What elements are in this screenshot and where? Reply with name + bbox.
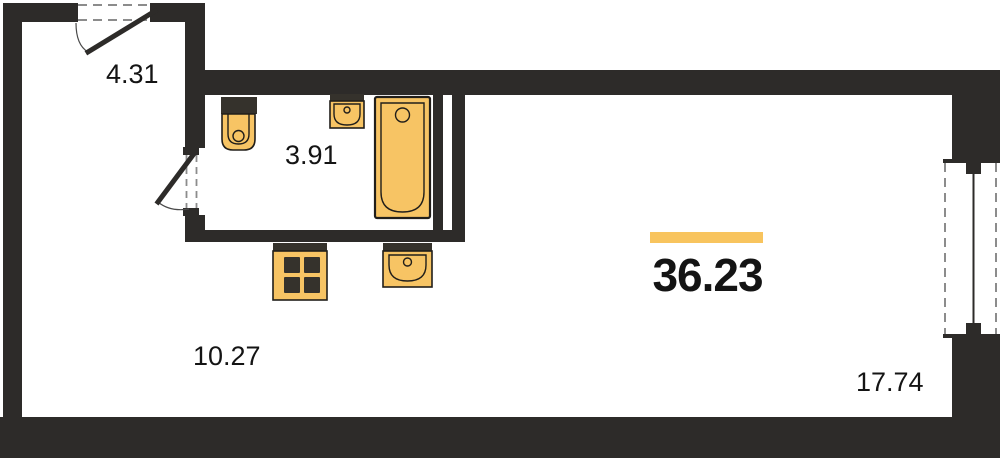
window-frame-bottom: [966, 323, 981, 334]
window-icon: [943, 159, 1000, 338]
floor-plan: 4.31 3.91 10.27 17.74 36.23: [0, 0, 1000, 458]
living-area-label: 17.74: [856, 368, 924, 398]
bathroom-door-icon: [158, 147, 199, 216]
total-area-accent-bar: [650, 232, 763, 243]
bathtub-body: [375, 97, 430, 218]
bathroom-area-label: 3.91: [285, 141, 338, 171]
stove-burner-1: [284, 257, 300, 273]
bathtub-icon: [375, 97, 430, 218]
sink-body: [330, 101, 364, 128]
entrance-door-swing-arc: [76, 23, 88, 52]
kitchen-sink-mount: [383, 243, 432, 251]
bathroom-door-leaf: [158, 155, 193, 202]
entrance-door-icon: [70, 3, 160, 52]
kitchen-sink-icon: [383, 243, 432, 287]
stove-burner-2: [304, 257, 320, 273]
toilet-tank: [221, 97, 257, 114]
stove-burner-4: [304, 277, 320, 293]
toilet-icon: [221, 97, 257, 150]
stove-mount: [273, 243, 327, 251]
stove-burner-3: [284, 277, 300, 293]
stove-icon: [273, 243, 327, 300]
window-frame-top: [966, 163, 981, 174]
total-area-value: 36.23: [640, 252, 775, 298]
entrance-door-leaf: [88, 11, 155, 52]
sink-mount: [330, 94, 364, 101]
window-sill-bottom: [943, 334, 1000, 338]
total-area-block: 36.23: [640, 228, 775, 298]
kitchen-area-label: 10.27: [193, 342, 261, 372]
entrance-jamb-left: [70, 3, 78, 22]
hallway-area-label: 4.31: [106, 60, 159, 90]
window-sill-top: [943, 159, 1000, 163]
sink-icon: [330, 94, 364, 128]
